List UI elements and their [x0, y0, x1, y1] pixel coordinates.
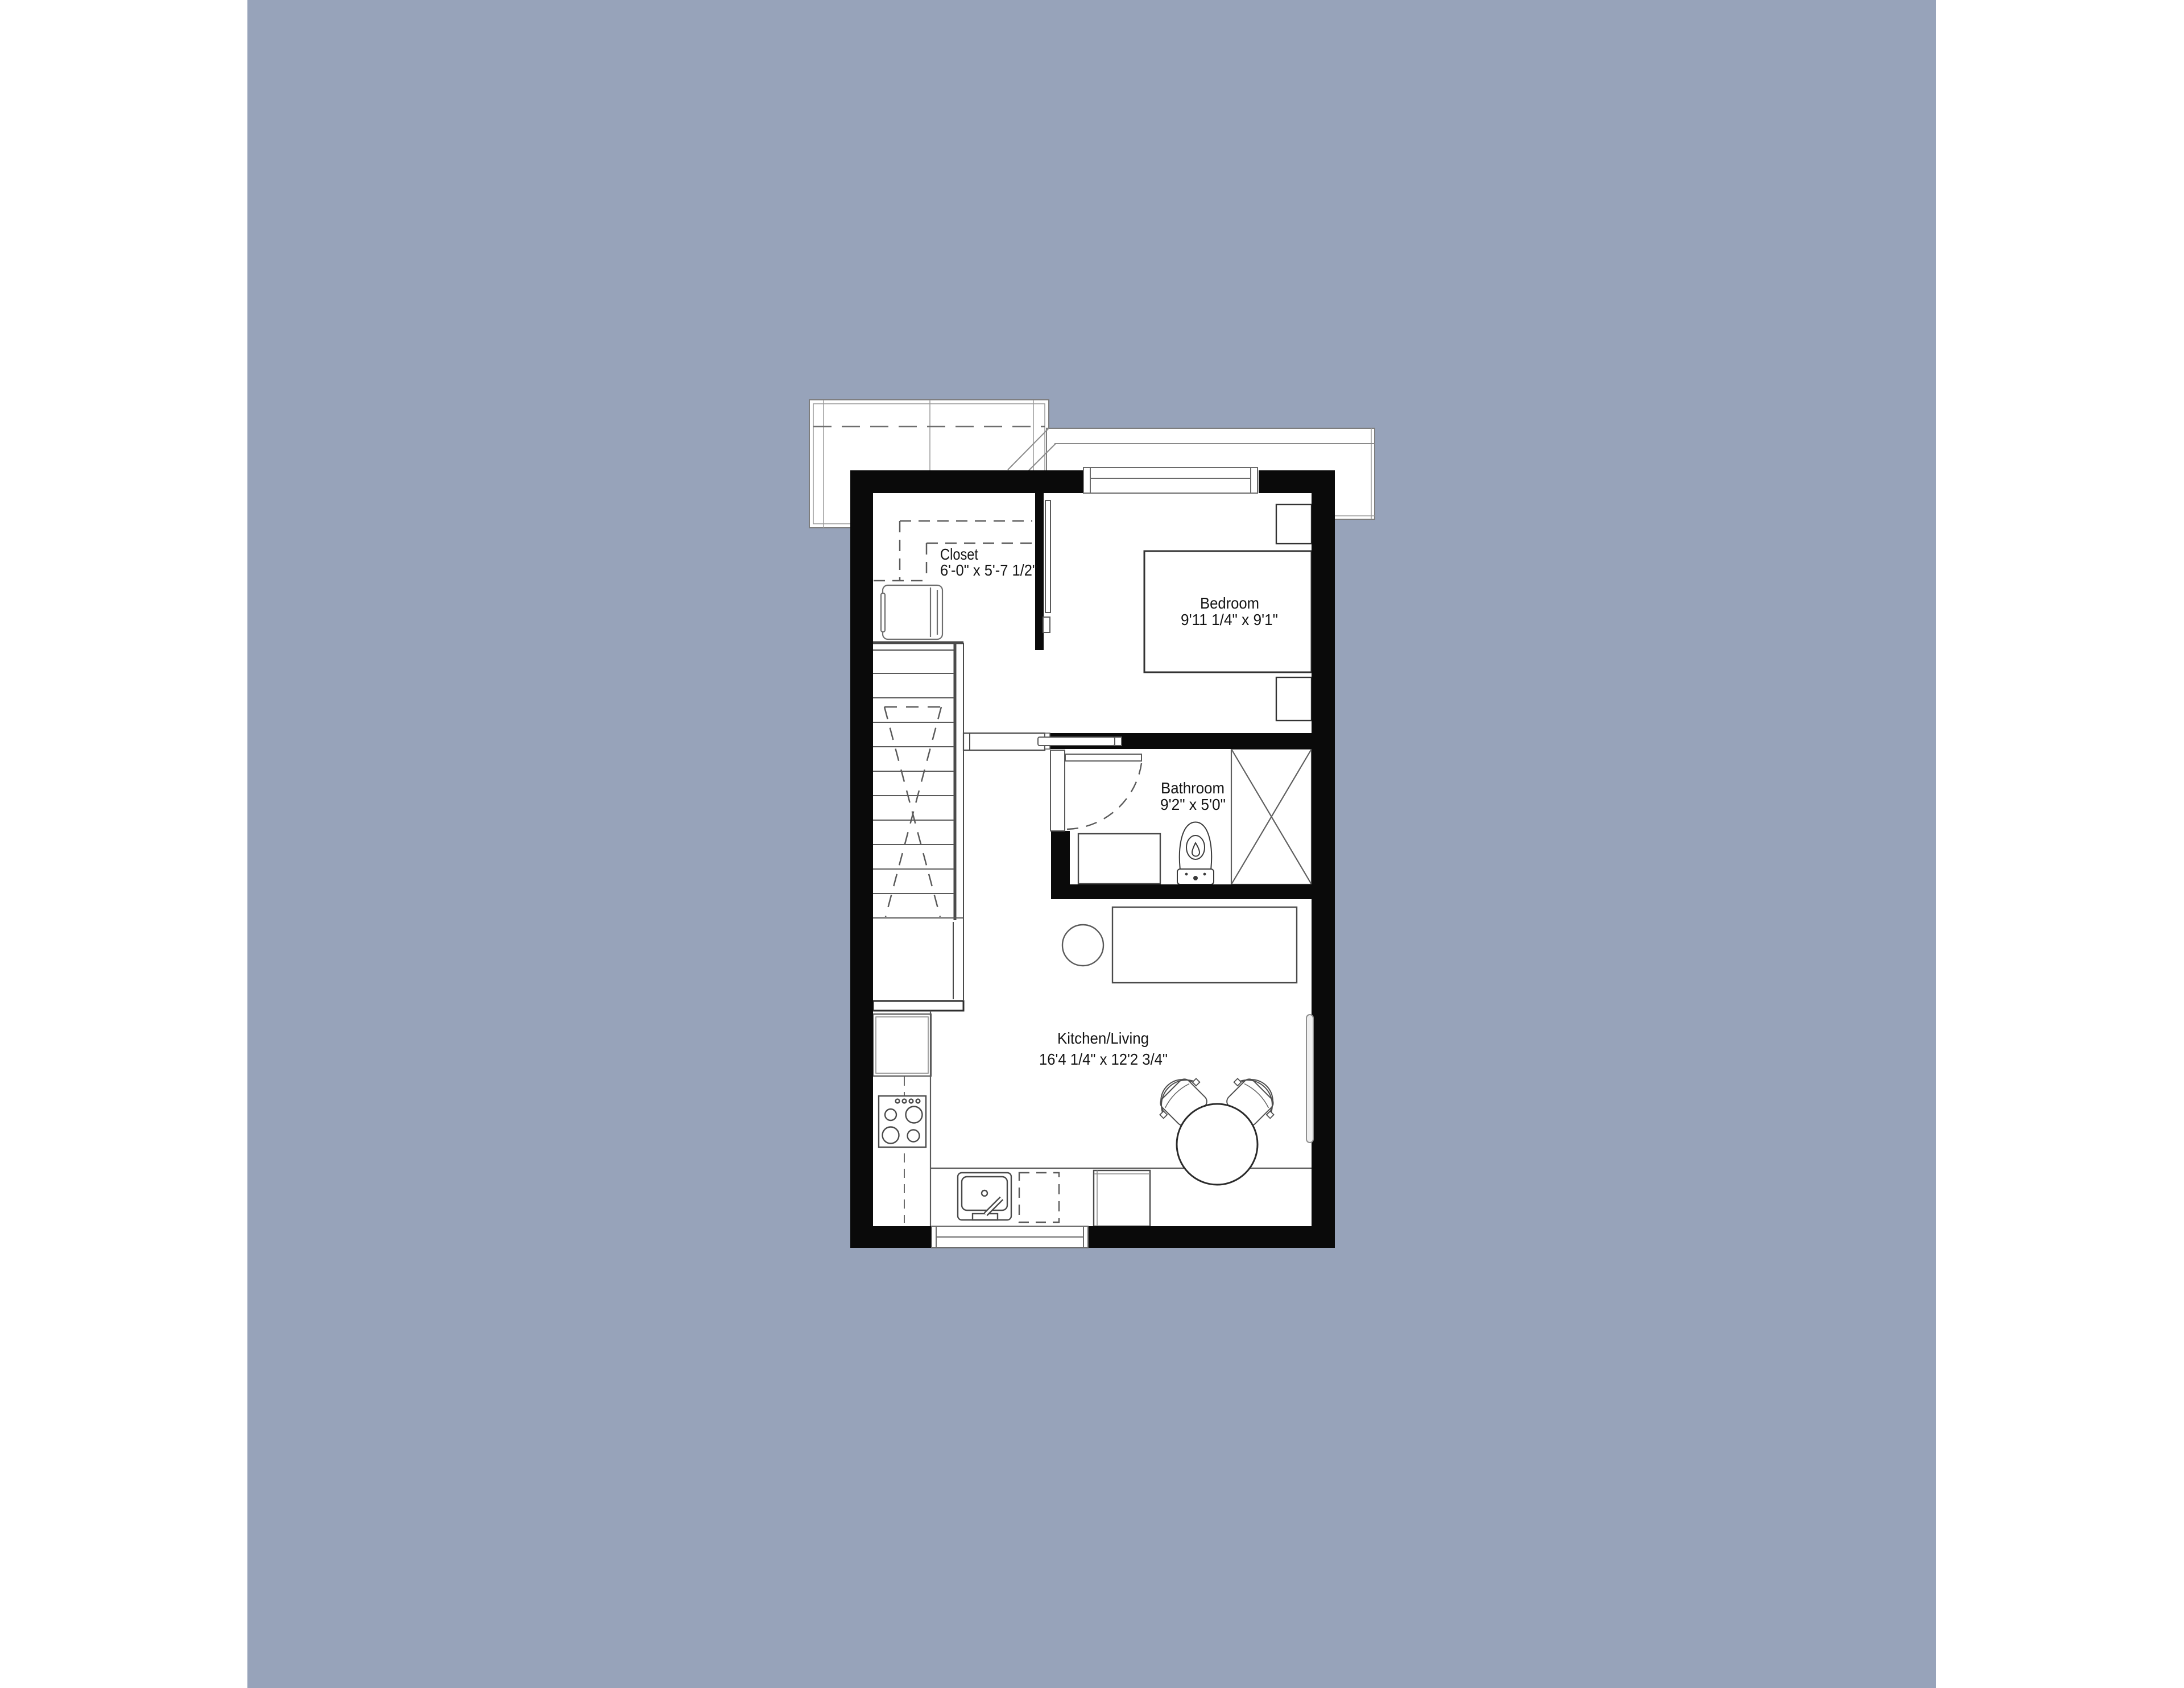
svg-text:6'-0" x 5'-7 1/2": 6'-0" x 5'-7 1/2": [940, 561, 1037, 579]
svg-text:Closet: Closet: [940, 545, 978, 563]
svg-text:Bathroom: Bathroom: [1161, 779, 1225, 797]
svg-text:16'4 1/4" x 12'2 3/4": 16'4 1/4" x 12'2 3/4": [1039, 1050, 1168, 1068]
svg-text:9'2" x 5'0": 9'2" x 5'0": [1160, 796, 1226, 813]
svg-text:9'11 1/4" x 9'1": 9'11 1/4" x 9'1": [1181, 611, 1278, 628]
svg-text:Bedroom: Bedroom: [1200, 594, 1259, 612]
svg-text:Kitchen/Living: Kitchen/Living: [1057, 1029, 1149, 1047]
